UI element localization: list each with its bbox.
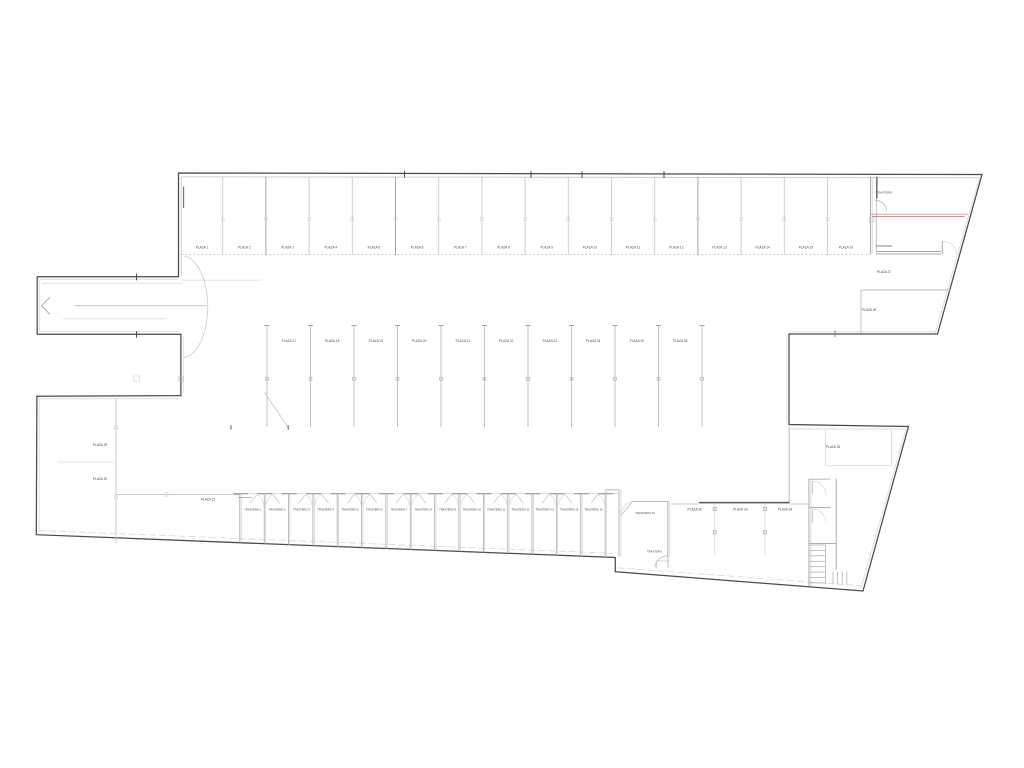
svg-text:PLAZA 23: PLAZA 23 bbox=[543, 339, 558, 343]
svg-text:PLAZA 9: PLAZA 9 bbox=[540, 246, 553, 250]
svg-text:PLAZA 35: PLAZA 35 bbox=[826, 445, 841, 449]
svg-text:PLAZA 10: PLAZA 10 bbox=[583, 246, 598, 250]
svg-text:PLAZA 13: PLAZA 13 bbox=[712, 246, 727, 250]
svg-text:TRASTERO: TRASTERO bbox=[647, 549, 663, 553]
svg-text:PLAZA 3: PLAZA 3 bbox=[281, 246, 294, 250]
svg-text:PLAZA 19: PLAZA 19 bbox=[369, 339, 384, 343]
svg-text:PLAZA 18: PLAZA 18 bbox=[325, 339, 340, 343]
svg-text:PLAZA 4: PLAZA 4 bbox=[324, 246, 337, 250]
svg-text:PLAZA 27: PLAZA 27 bbox=[877, 270, 892, 274]
svg-text:PLAZA 14: PLAZA 14 bbox=[756, 246, 771, 250]
svg-text:TRASTERO 10: TRASTERO 10 bbox=[463, 507, 482, 511]
svg-text:TRASTERO 14: TRASTERO 14 bbox=[560, 507, 579, 511]
svg-text:PLAZA 21: PLAZA 21 bbox=[456, 339, 471, 343]
svg-text:TRASTERO 6: TRASTERO 6 bbox=[366, 507, 383, 511]
svg-text:TRASTERO 3: TRASTERO 3 bbox=[293, 507, 310, 511]
svg-text:PLAZA 6: PLAZA 6 bbox=[411, 246, 424, 250]
svg-text:PLAZA 25: PLAZA 25 bbox=[630, 339, 645, 343]
svg-text:PLAZA 11: PLAZA 11 bbox=[626, 246, 640, 250]
svg-text:PLAZA 29: PLAZA 29 bbox=[93, 443, 108, 447]
svg-text:TRASTERO: TRASTERO bbox=[876, 244, 893, 248]
svg-text:TRASTERO 5: TRASTERO 5 bbox=[342, 507, 359, 511]
svg-text:PLAZA 32: PLAZA 32 bbox=[688, 508, 703, 512]
svg-text:TRASTERO 1: TRASTERO 1 bbox=[244, 507, 261, 511]
svg-text:TRASTERO 4: TRASTERO 4 bbox=[317, 507, 334, 511]
svg-text:TRASTERO 13: TRASTERO 13 bbox=[536, 507, 555, 511]
svg-text:TRASTERO 12: TRASTERO 12 bbox=[511, 507, 530, 511]
svg-text:PLAZA 33: PLAZA 33 bbox=[733, 508, 748, 512]
svg-text:TRASTERO 8: TRASTERO 8 bbox=[415, 507, 432, 511]
svg-text:PLAZA 12: PLAZA 12 bbox=[669, 246, 684, 250]
svg-text:PLAZA 26: PLAZA 26 bbox=[673, 339, 688, 343]
svg-text:PLAZA 17: PLAZA 17 bbox=[282, 339, 297, 343]
svg-text:PLAZA 7: PLAZA 7 bbox=[454, 246, 467, 250]
svg-text:PLAZA 22: PLAZA 22 bbox=[499, 339, 514, 343]
svg-text:TRASTERO 2: TRASTERO 2 bbox=[269, 507, 286, 511]
svg-text:PLAZA 20: PLAZA 20 bbox=[412, 339, 427, 343]
svg-text:TRASTERO 11: TRASTERO 11 bbox=[487, 507, 506, 511]
svg-text:PLAZA 16: PLAZA 16 bbox=[839, 246, 854, 250]
svg-text:TRASTERO 15: TRASTERO 15 bbox=[584, 507, 603, 511]
svg-text:PLAZA 1: PLAZA 1 bbox=[196, 246, 209, 250]
svg-text:PLAZA 31: PLAZA 31 bbox=[201, 497, 216, 501]
svg-text:PLAZA 5: PLAZA 5 bbox=[368, 246, 381, 250]
svg-text:PLAZA 34: PLAZA 34 bbox=[778, 508, 793, 512]
svg-text:TRASTERO: TRASTERO bbox=[876, 191, 893, 195]
svg-text:PLAZA 2: PLAZA 2 bbox=[238, 246, 251, 250]
svg-text:PLAZA 24: PLAZA 24 bbox=[586, 339, 601, 343]
svg-text:PLAZA 28: PLAZA 28 bbox=[862, 308, 877, 312]
svg-text:TRASTERO 7: TRASTERO 7 bbox=[390, 507, 407, 511]
svg-text:PLAZA 15: PLAZA 15 bbox=[799, 246, 814, 250]
svg-text:PLAZA 8: PLAZA 8 bbox=[497, 246, 510, 250]
svg-text:TRASTERO 9: TRASTERO 9 bbox=[439, 507, 456, 511]
svg-text:TRASTERO 16: TRASTERO 16 bbox=[635, 511, 655, 515]
svg-text:PLAZA 30: PLAZA 30 bbox=[93, 477, 108, 481]
